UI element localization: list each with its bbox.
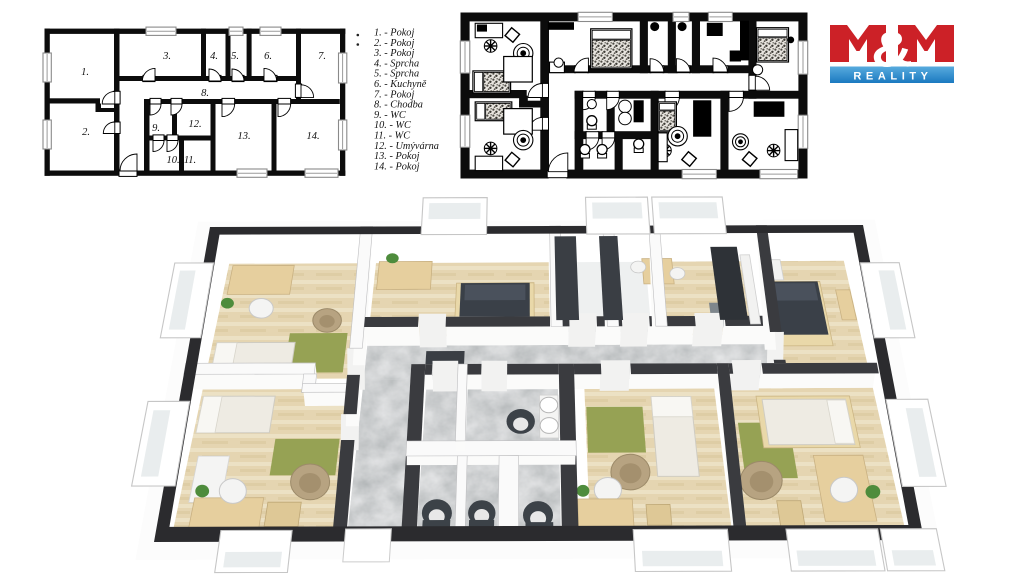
svg-text:12.: 12. bbox=[188, 119, 201, 130]
svg-text:14. - Pokoj: 14. - Pokoj bbox=[374, 161, 420, 172]
svg-text:13.: 13. bbox=[237, 131, 250, 142]
svg-text:11.: 11. bbox=[184, 155, 196, 166]
svg-text:4.: 4. bbox=[210, 51, 218, 62]
svg-text:5.: 5. bbox=[231, 51, 239, 62]
svg-text:9.: 9. bbox=[152, 123, 160, 134]
svg-text:8.: 8. bbox=[201, 88, 209, 99]
svg-text:REALITY: REALITY bbox=[853, 71, 932, 83]
svg-text:1.: 1. bbox=[81, 67, 89, 78]
svg-text:3.: 3. bbox=[162, 51, 171, 62]
svg-text:10.: 10. bbox=[166, 155, 179, 166]
svg-text:6.: 6. bbox=[264, 51, 272, 62]
svg-text:14.: 14. bbox=[306, 131, 319, 142]
svg-text:&: & bbox=[871, 22, 913, 78]
svg-text:2.: 2. bbox=[82, 127, 90, 138]
svg-text:7.: 7. bbox=[318, 51, 326, 62]
